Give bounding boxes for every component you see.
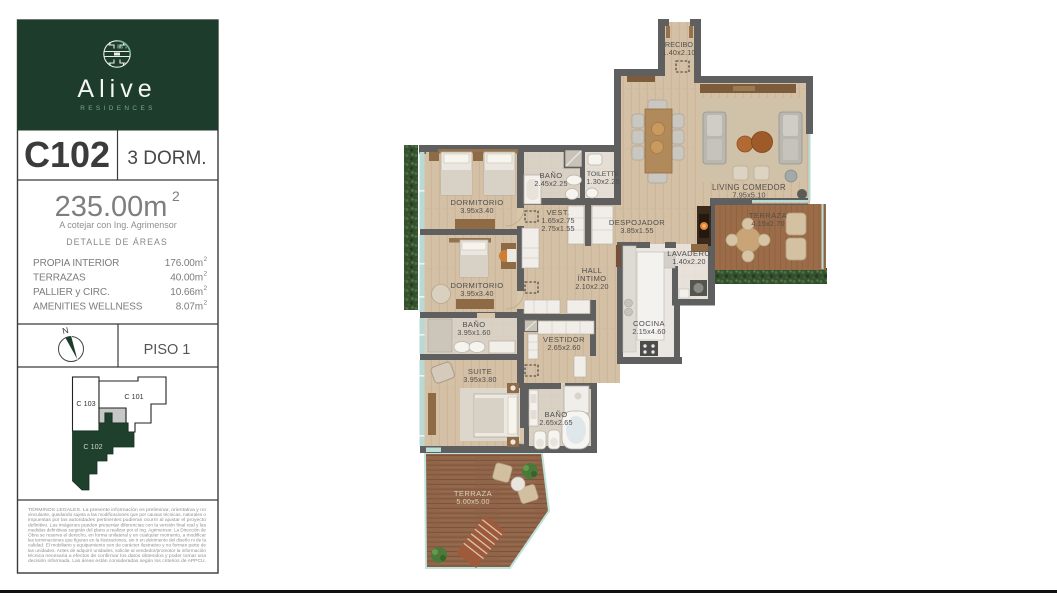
svg-text:3.95x3.40: 3.95x3.40 xyxy=(460,289,493,298)
svg-text:las unidades. Antes de adquiri: las unidades. Antes de adquirir unidades… xyxy=(28,548,206,554)
svg-text:PALLIER y CIRC.: PALLIER y CIRC. xyxy=(33,287,110,298)
svg-text:las terminaciones que figuran: las terminaciones que figuran en la ilus… xyxy=(28,538,206,544)
svg-text:2.65x2.60: 2.65x2.60 xyxy=(547,343,580,352)
svg-text:7.95x5.10: 7.95x5.10 xyxy=(732,191,765,200)
svg-text:3.95x3.40: 3.95x3.40 xyxy=(460,206,493,215)
svg-text:DETALLE DE ÁREAS: DETALLE DE ÁREAS xyxy=(66,237,167,247)
svg-text:1.30x2.25: 1.30x2.25 xyxy=(586,177,619,186)
svg-text:2: 2 xyxy=(204,271,208,278)
svg-text:C 102: C 102 xyxy=(83,442,102,451)
svg-text:AMENITIES WELLNESS: AMENITIES WELLNESS xyxy=(33,302,143,313)
svg-text:técnica necesaria a efectos de: técnica necesaria a efectos de confirmar… xyxy=(28,553,206,559)
svg-text:RESIDENCES: RESIDENCES xyxy=(80,105,156,112)
svg-text:2.10x2.20: 2.10x2.20 xyxy=(575,282,608,291)
svg-text:C 103: C 103 xyxy=(76,399,95,408)
svg-text:2: 2 xyxy=(204,256,208,263)
svg-text:3.95x3.80: 3.95x3.80 xyxy=(463,375,496,384)
svg-text:PROPIA INTERIOR: PROPIA INTERIOR xyxy=(33,258,119,269)
svg-text:1.40x2.20: 1.40x2.20 xyxy=(672,257,705,266)
svg-text:3.85x1.55: 3.85x1.55 xyxy=(620,226,653,235)
svg-text:Alive: Alive xyxy=(77,75,156,103)
svg-text:TÉRMINOS LEGALES. La presente: TÉRMINOS LEGALES. La presente informació… xyxy=(28,506,206,513)
svg-text:2: 2 xyxy=(204,285,208,292)
svg-text:3.95x1.60: 3.95x1.60 xyxy=(457,328,490,337)
svg-text:C 101: C 101 xyxy=(124,392,143,401)
svg-text:176.00m: 176.00m xyxy=(165,258,203,269)
svg-text:vinculante, quedando sujeta a: vinculante, quedando sujeta a las modifi… xyxy=(28,512,206,518)
svg-text:A cotejar con Ing. Agrimensor: A cotejar con Ing. Agrimensor xyxy=(59,220,177,230)
svg-text:2.65x2.65: 2.65x2.65 xyxy=(539,418,572,427)
svg-text:calidad. El mobiliario y equip: calidad. El mobiliario y equipamiento so… xyxy=(28,543,206,549)
svg-text:235.00m: 235.00m xyxy=(55,191,168,223)
svg-text:10.66m: 10.66m xyxy=(170,287,203,298)
svg-text:C102: C102 xyxy=(24,134,110,175)
svg-text:2: 2 xyxy=(172,188,180,204)
svg-text:impuestas por las autoridades: impuestas por las autoridades pertinente… xyxy=(28,517,206,523)
svg-text:3 DORM.: 3 DORM. xyxy=(127,148,206,169)
svg-text:2.75x1.55: 2.75x1.55 xyxy=(541,224,574,233)
svg-text:2.15x4.60: 2.15x4.60 xyxy=(632,327,665,336)
svg-text:definitivo. Las imágenes puede: definitivo. Las imágenes pueden presenta… xyxy=(28,522,207,528)
svg-text:decisión informada. Las áreas: decisión informada. Las áreas están cons… xyxy=(28,558,206,564)
svg-text:2.45x2.25: 2.45x2.25 xyxy=(534,179,567,188)
svg-text:5.00x5.00: 5.00x5.00 xyxy=(456,497,489,506)
svg-text:8.07m: 8.07m xyxy=(176,302,203,313)
svg-text:PISO 1: PISO 1 xyxy=(144,342,191,358)
svg-text:4.15x2.70: 4.15x2.70 xyxy=(751,219,784,228)
svg-text:2: 2 xyxy=(204,300,208,307)
svg-text:medidas definitivas surgirán d: medidas definitivas surgirán del plano a… xyxy=(28,527,206,533)
svg-text:1.40x2.10: 1.40x2.10 xyxy=(662,48,695,57)
svg-text:Obra se reserva el derecho, en: Obra se reserva el derecho, en forma uni… xyxy=(28,533,206,539)
svg-text:40.00m: 40.00m xyxy=(170,273,203,284)
svg-text:TERRAZAS: TERRAZAS xyxy=(33,273,86,284)
